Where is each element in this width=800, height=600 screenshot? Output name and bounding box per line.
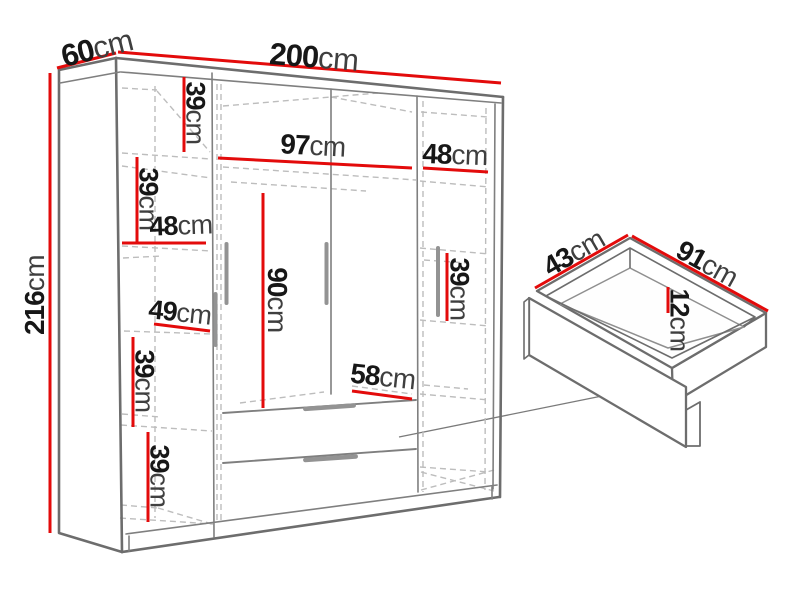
dim-label-left-width: 48cm bbox=[149, 211, 213, 240]
dim-label-left-shelf-4: 39cm bbox=[146, 444, 173, 507]
door-handles bbox=[214, 242, 441, 462]
dim-unit: cm bbox=[145, 473, 175, 508]
drawer-foot bbox=[686, 402, 700, 446]
dim-label-left-shelf-1: 39cm bbox=[182, 81, 209, 144]
dim-value: 58 bbox=[349, 358, 381, 392]
dim-unit: cm bbox=[181, 110, 211, 145]
dim-label-left-shelf-3: 39cm bbox=[131, 349, 158, 412]
dim-label-overall-width: 200cm bbox=[268, 38, 359, 76]
dim-value: 216 bbox=[19, 291, 50, 335]
drawer-front-cap bbox=[524, 298, 529, 359]
dim-label-right-width: 48cm bbox=[422, 140, 488, 170]
dim-label-drawer-height: 12cm bbox=[666, 288, 693, 351]
dim-value: 39 bbox=[181, 81, 211, 109]
dim-unit: cm bbox=[445, 286, 475, 321]
dim-label-center-width: 97cm bbox=[280, 130, 347, 161]
dim-label-center-above-drawers: 58cm bbox=[349, 360, 417, 395]
dim-unit: cm bbox=[19, 255, 50, 291]
dim-unit: cm bbox=[175, 297, 213, 330]
dim-value: 49 bbox=[147, 294, 178, 327]
dim-label-center-hanging-height: 90cm bbox=[263, 267, 291, 332]
dim-unit: cm bbox=[130, 378, 160, 413]
dim-value: 39 bbox=[145, 444, 175, 472]
dim-label-left-width-lower: 49cm bbox=[147, 296, 213, 329]
dim-unit: cm bbox=[451, 139, 488, 171]
dim-value: 12 bbox=[665, 288, 695, 316]
dim-value: 48 bbox=[149, 211, 178, 242]
dim-value: 200 bbox=[268, 36, 319, 75]
dim-value: 97 bbox=[280, 128, 311, 160]
dim-unit: cm bbox=[309, 130, 347, 163]
diagram-canvas: 200cm 60cm 216cm 39cm 39cm 48cm 49cm 39c… bbox=[0, 0, 800, 600]
dim-unit: cm bbox=[177, 209, 213, 240]
dim-unit: cm bbox=[665, 317, 695, 352]
dim-unit: cm bbox=[262, 296, 293, 332]
dim-value: 48 bbox=[422, 138, 452, 170]
dim-unit: cm bbox=[378, 361, 417, 396]
dim-label-right-shelf: 39cm bbox=[446, 257, 473, 320]
dim-label-overall-height: 216cm bbox=[21, 255, 49, 335]
dim-unit: cm bbox=[317, 40, 360, 78]
dim-value: 39 bbox=[130, 349, 160, 377]
dim-value: 90 bbox=[262, 267, 293, 296]
dim-value: 39 bbox=[445, 257, 475, 285]
dim-value: 39 bbox=[134, 167, 164, 195]
